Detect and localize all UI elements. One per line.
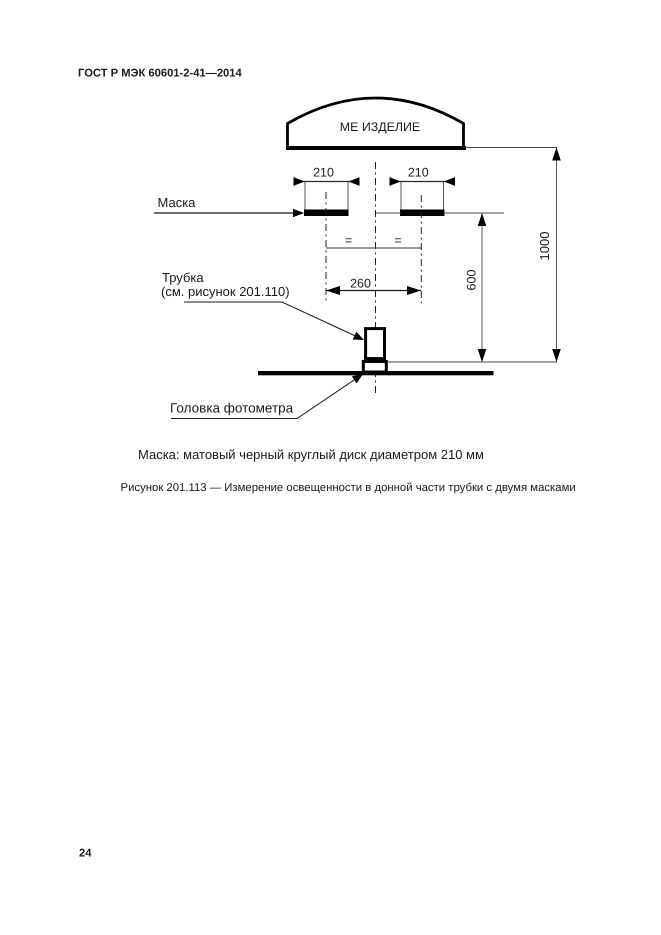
svg-text:МЕ ИЗДЕЛИЕ: МЕ ИЗДЕЛИЕ [340, 120, 420, 134]
svg-text:=: = [345, 234, 352, 248]
svg-text:(см. рисунок 201.110): (см. рисунок 201.110) [161, 284, 290, 299]
svg-text:1000: 1000 [537, 232, 552, 261]
svg-text:=: = [394, 234, 401, 248]
svg-text:210: 210 [313, 165, 334, 179]
svg-text:260: 260 [350, 276, 371, 290]
svg-text:24: 24 [79, 848, 92, 860]
svg-text:Рисунок 201.113 — Измерение ос: Рисунок 201.113 — Измерение освещенности… [121, 482, 576, 494]
svg-text:Трубка: Трубка [162, 270, 204, 285]
svg-text:210: 210 [408, 165, 429, 179]
svg-text:600: 600 [465, 270, 479, 291]
svg-text:ГОСТ Р МЭК 60601-2-41—2014: ГОСТ Р МЭК 60601-2-41—2014 [78, 68, 243, 80]
svg-text:Маска: матовый черный круглый: Маска: матовый черный круглый диск диаме… [138, 447, 484, 462]
svg-text:Маска: Маска [158, 195, 197, 210]
svg-text:Головка фотометра: Головка фотометра [170, 401, 294, 416]
